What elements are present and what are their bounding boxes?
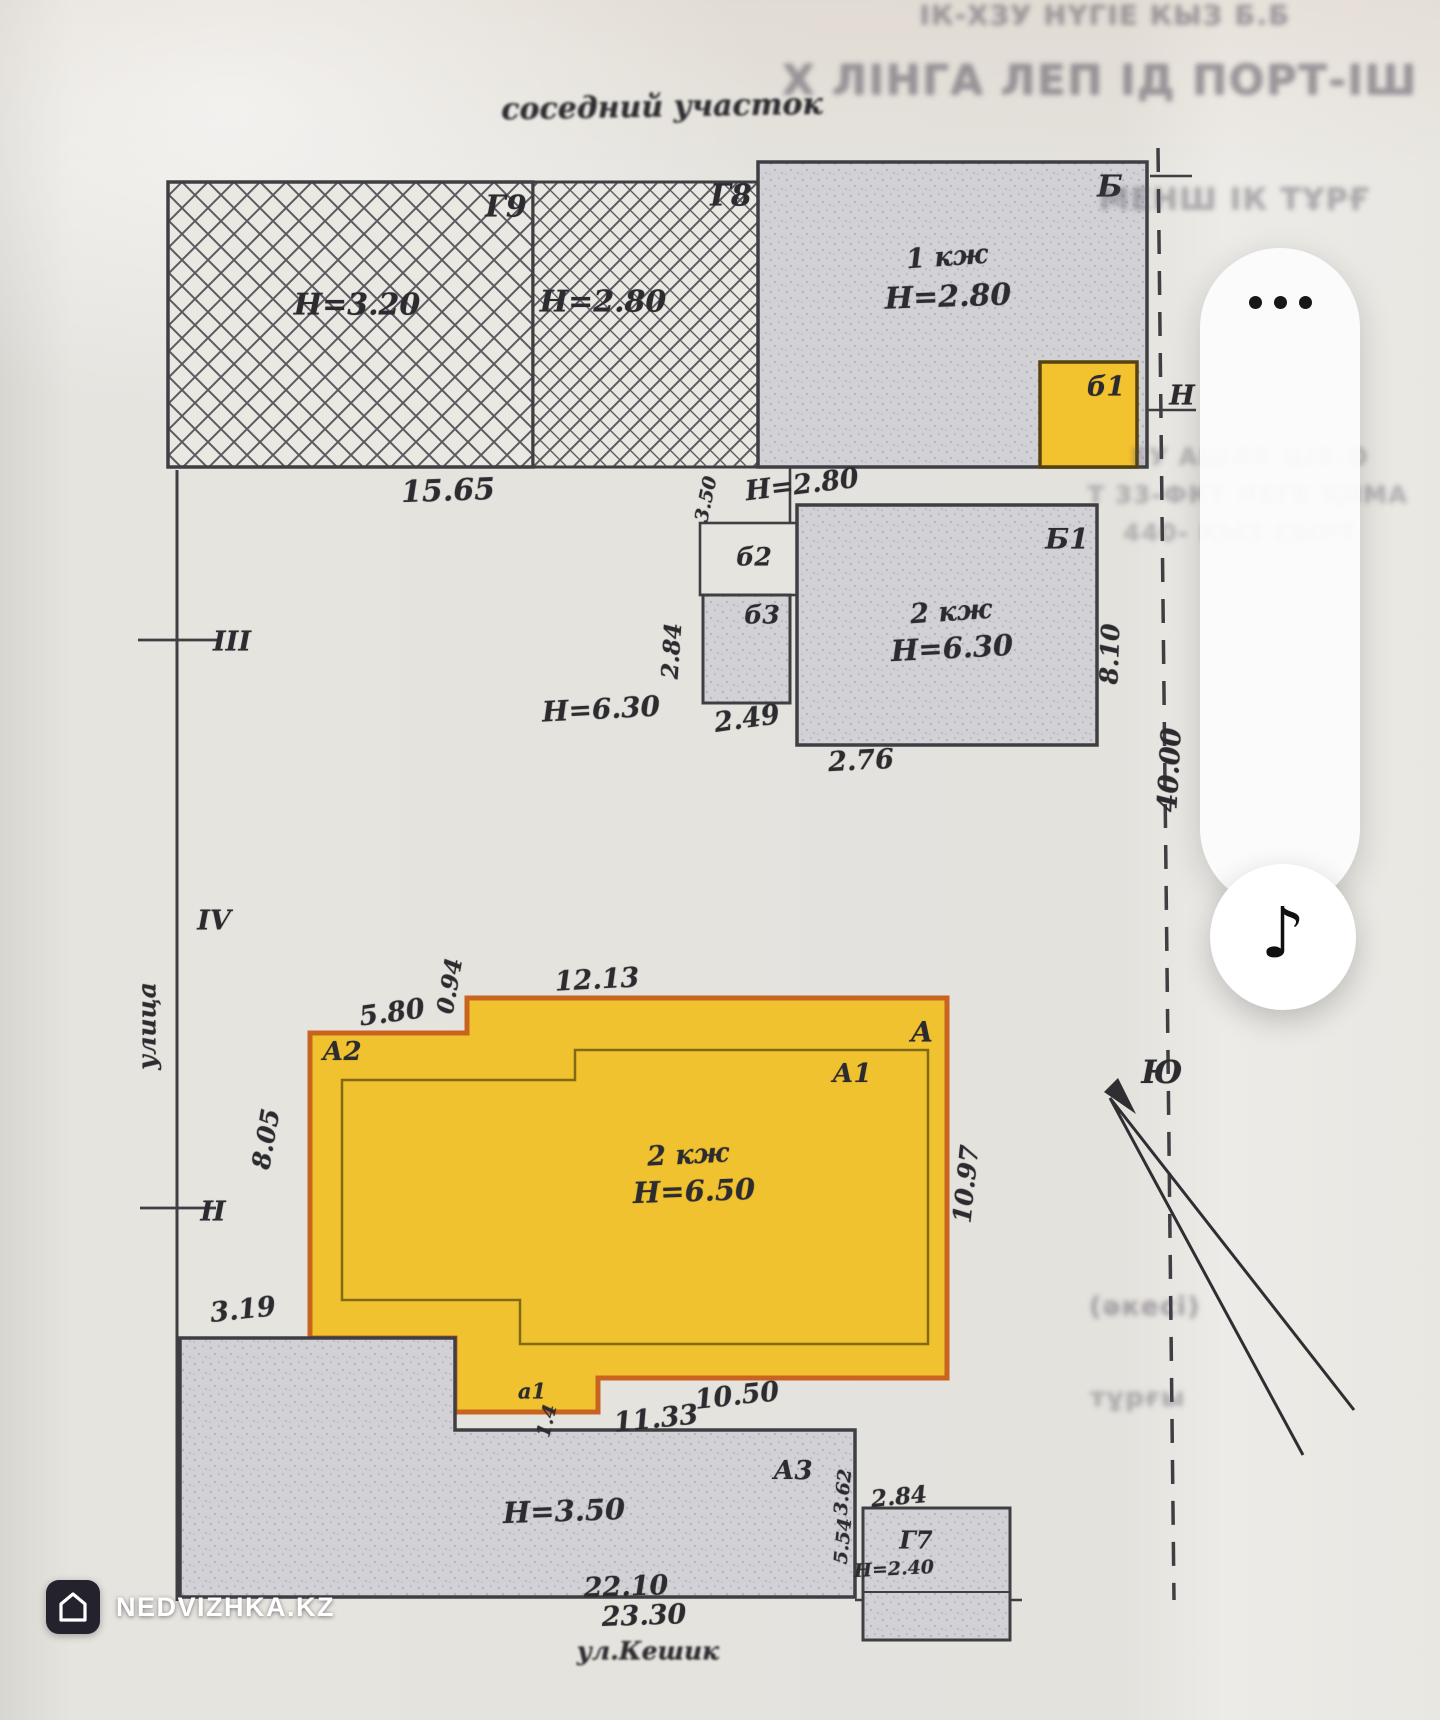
south-arrow bbox=[1110, 1098, 1354, 1455]
app-screen: соседний участокГ9Н=3.20Г8Н=2.80Б1 кжН=2… bbox=[0, 0, 1440, 1720]
building-b1-small-yellow bbox=[1040, 362, 1137, 467]
building-g7 bbox=[863, 1508, 1010, 1640]
more-options-icon[interactable] bbox=[1200, 296, 1360, 309]
more-options-pill[interactable] bbox=[1200, 248, 1360, 908]
building-b1-two-storey bbox=[797, 505, 1097, 745]
music-button[interactable]: ♪ bbox=[1210, 864, 1356, 1010]
building-g8-shed bbox=[533, 182, 758, 467]
building-g9-shed bbox=[168, 182, 533, 467]
building-b3-small bbox=[703, 595, 790, 703]
watermark-brand: NEDVIZHKA.KZ bbox=[116, 1592, 335, 1623]
building-b2-small bbox=[700, 523, 797, 595]
music-note-icon: ♪ bbox=[1261, 898, 1306, 968]
watermark: NEDVIZHKA.KZ bbox=[46, 1580, 335, 1634]
watermark-house-icon bbox=[46, 1580, 100, 1634]
plot-boundary-right-dashed bbox=[1158, 148, 1174, 1600]
